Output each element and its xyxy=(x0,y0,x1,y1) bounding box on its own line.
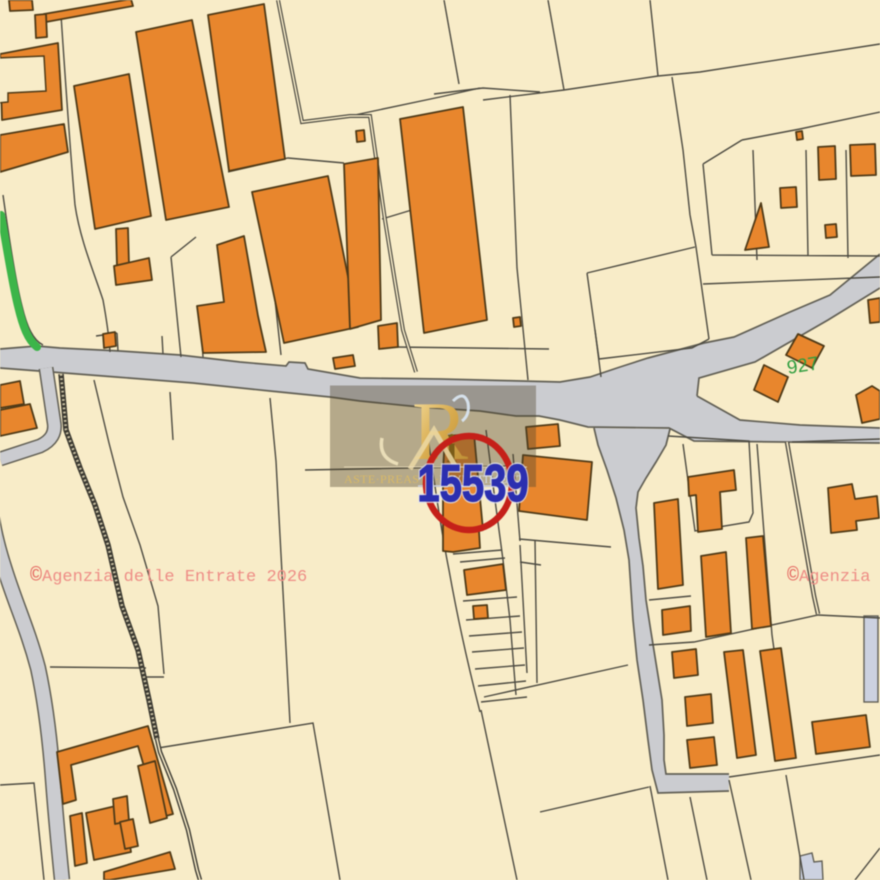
svg-text:©Agenzia: ©Agenzia xyxy=(787,565,870,588)
svg-text:15539: 15539 xyxy=(417,454,528,512)
svg-text:©Agenzia delle Entrate 2026: ©Agenzia delle Entrate 2026 xyxy=(30,565,307,588)
